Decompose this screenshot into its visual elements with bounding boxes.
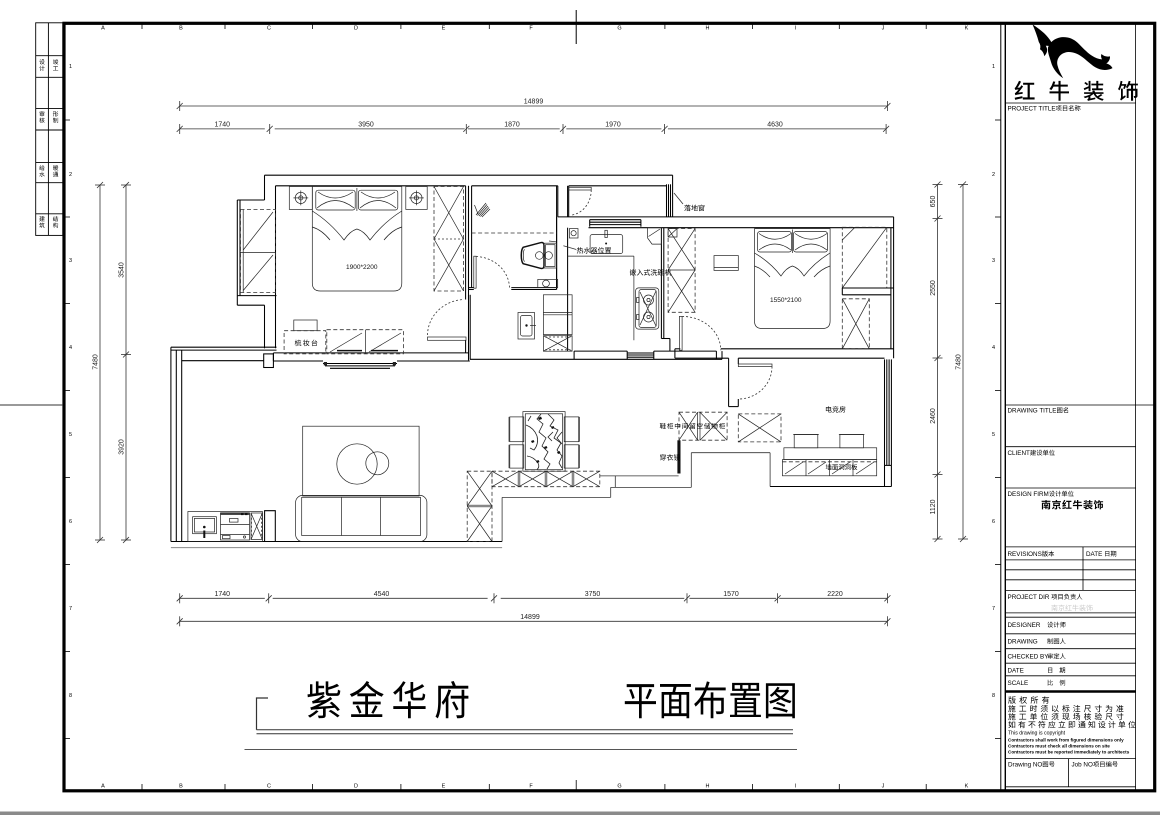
svg-text:5: 5 — [69, 432, 72, 438]
svg-text:3540: 3540 — [119, 262, 126, 278]
svg-text:H: H — [706, 784, 710, 790]
svg-text:J: J — [882, 784, 885, 790]
svg-text:G: G — [617, 26, 621, 32]
svg-text:14899: 14899 — [524, 99, 544, 106]
svg-text:B: B — [179, 784, 183, 790]
svg-text:A: A — [101, 784, 105, 790]
svg-text:2: 2 — [992, 172, 995, 178]
svg-text:E: E — [442, 26, 446, 32]
svg-text:B: B — [179, 26, 183, 32]
svg-text:2220: 2220 — [827, 591, 843, 598]
svg-text:C: C — [267, 26, 271, 32]
svg-text:DESIGN FIRM: DESIGN FIRM — [1008, 491, 1049, 498]
svg-text:4540: 4540 — [374, 591, 390, 598]
svg-text:3: 3 — [992, 258, 995, 264]
svg-text:3750: 3750 — [585, 591, 601, 598]
svg-text:7: 7 — [69, 606, 72, 612]
svg-text:7480: 7480 — [93, 354, 100, 370]
svg-text:Contractors must be reported i: Contractors must be reported immediately… — [1008, 750, 1130, 755]
svg-text:DESIGNER: DESIGNER — [1008, 622, 1041, 629]
svg-text:J: J — [882, 26, 885, 32]
svg-text:Job NO: Job NO — [1072, 762, 1093, 769]
svg-text:G: G — [617, 784, 621, 790]
svg-text:6: 6 — [992, 519, 995, 525]
svg-text:4630: 4630 — [767, 122, 783, 129]
svg-text:1970: 1970 — [605, 122, 621, 129]
svg-text:1: 1 — [69, 64, 72, 70]
svg-text:6: 6 — [69, 519, 72, 525]
svg-text:SCALE: SCALE — [1008, 680, 1029, 687]
svg-text:A: A — [101, 26, 105, 32]
svg-text:2550: 2550 — [930, 280, 937, 296]
svg-text:1740: 1740 — [215, 591, 231, 598]
svg-text:4: 4 — [69, 345, 72, 351]
svg-text:Contractors shall work from fi: Contractors shall work from figured dime… — [1008, 738, 1124, 743]
svg-text:DATE: DATE — [1086, 551, 1102, 558]
svg-text:PROJECT TITLE: PROJECT TITLE — [1008, 106, 1056, 113]
svg-text:D: D — [354, 26, 358, 32]
svg-text:3950: 3950 — [358, 122, 374, 129]
svg-text:C: C — [267, 784, 271, 790]
svg-text:2: 2 — [69, 172, 72, 178]
svg-text:Drawing NO: Drawing NO — [1008, 762, 1042, 769]
svg-text:K: K — [965, 784, 969, 790]
svg-text:2460: 2460 — [930, 408, 937, 424]
svg-text:8: 8 — [992, 693, 995, 699]
svg-text:Contractors must check all dim: Contractors must check all dimensions on… — [1008, 744, 1110, 749]
svg-text:REVISIONS: REVISIONS — [1008, 551, 1042, 558]
svg-text:1870: 1870 — [504, 122, 520, 129]
svg-text:1120: 1120 — [930, 499, 937, 514]
svg-text:K: K — [965, 26, 969, 32]
svg-text:14899: 14899 — [520, 614, 540, 621]
svg-text:1900*2200: 1900*2200 — [346, 264, 378, 271]
svg-text:4: 4 — [992, 345, 995, 351]
svg-text:8: 8 — [69, 693, 72, 699]
svg-text:1570: 1570 — [723, 591, 739, 598]
svg-text:DRAWING TITLE: DRAWING TITLE — [1008, 408, 1057, 415]
svg-text:7: 7 — [992, 606, 995, 612]
svg-text:CLIENT: CLIENT — [1008, 450, 1031, 457]
svg-text:H: H — [706, 26, 710, 32]
svg-text:3920: 3920 — [119, 439, 126, 455]
svg-text:1: 1 — [992, 64, 995, 70]
svg-text:D: D — [354, 784, 358, 790]
svg-text:DATE: DATE — [1008, 668, 1024, 675]
svg-text:E: E — [442, 784, 446, 790]
svg-text:DRAWING: DRAWING — [1008, 639, 1038, 646]
svg-text:7480: 7480 — [956, 354, 963, 370]
svg-text:This drawing is copyright: This drawing is copyright — [1008, 731, 1066, 737]
svg-text:5: 5 — [992, 432, 995, 438]
svg-text:3: 3 — [69, 258, 72, 264]
svg-text:650: 650 — [930, 196, 937, 208]
svg-text:PROJECT DIR: PROJECT DIR — [1008, 594, 1050, 601]
svg-text:1550*2100: 1550*2100 — [770, 297, 802, 304]
svg-text:CHECKED BY: CHECKED BY — [1008, 654, 1050, 661]
svg-text:1740: 1740 — [215, 122, 231, 129]
